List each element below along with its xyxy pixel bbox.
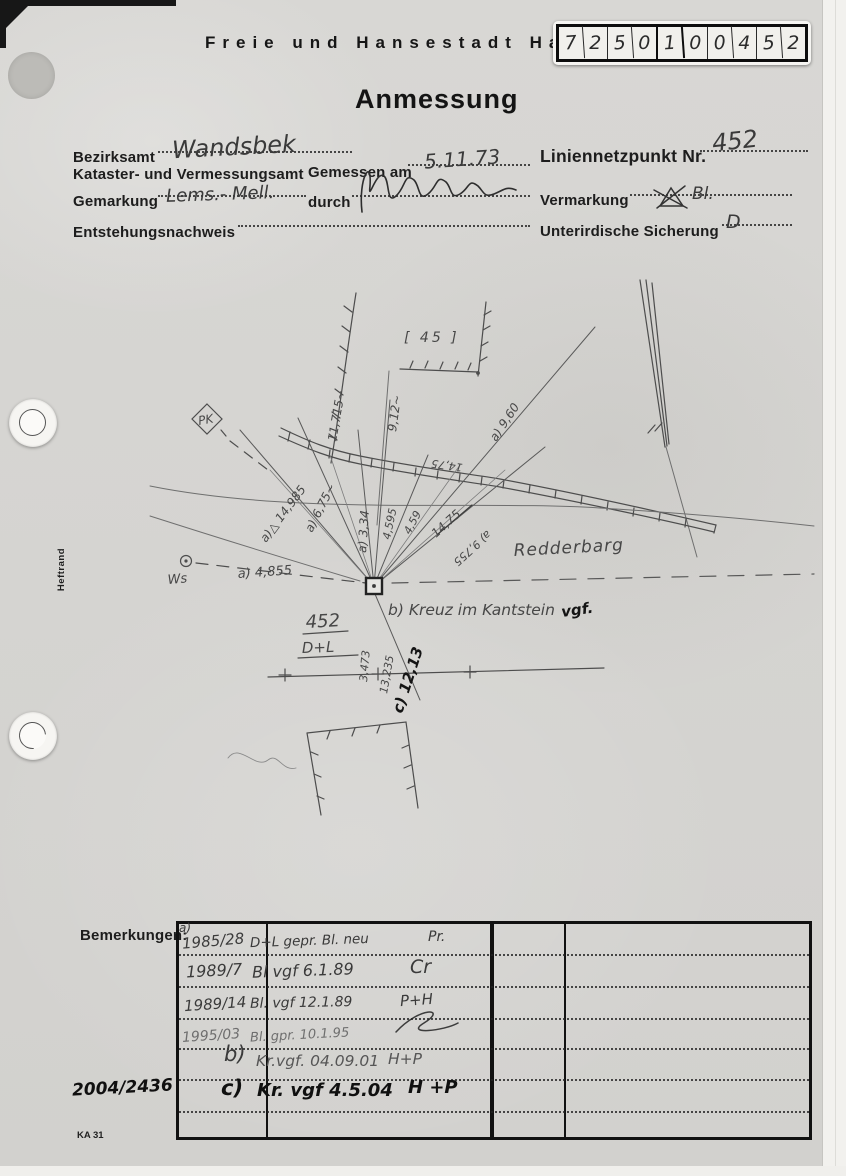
- measure-14985: a)△ 14,985: [257, 483, 309, 545]
- remark-ref: 1989/7: [186, 960, 243, 982]
- measure-4595: 4,595: [380, 507, 399, 541]
- measure-9755: a) 9,755: [451, 528, 494, 568]
- measure-c-1213: c) 12,13: [389, 645, 427, 716]
- pk-label: PK: [197, 411, 215, 428]
- measure-334: a) 3,34: [355, 510, 372, 553]
- point-number: 452: [305, 610, 340, 633]
- measure-960: a) 9,60: [487, 400, 523, 443]
- scanned-survey-sheet: Freie und Hansestadt Ha 7 2 5 0 1 0 0 4 …: [0, 0, 846, 1176]
- remark-note: Kr. vgf 4.5.04: [257, 1080, 393, 1101]
- remark-ref: b): [224, 1042, 246, 1066]
- sketch-labels: [ 45 ] PK 11,715~ 9,12~ a) 9,60 14,75 a)…: [167, 330, 624, 715]
- point-marking: D+L: [302, 638, 335, 657]
- measure-912: 9,12~: [385, 394, 404, 432]
- measure-3473: 3,473: [357, 650, 373, 683]
- street-name: Redderbarg: [513, 535, 624, 561]
- form-code: KA 31: [77, 1130, 104, 1141]
- remark-note: Bl. vgf 12.1.89: [250, 994, 353, 1012]
- measure-1475-band: 14,75: [430, 457, 463, 474]
- parcel-number-label: [ 45 ]: [404, 330, 460, 346]
- ws-label: Ws: [167, 571, 188, 588]
- measure-1475-crossed: 14,75: [429, 507, 464, 540]
- point-note-suffix: vgf.: [560, 599, 594, 621]
- measure-13235: 13,235: [377, 654, 396, 694]
- crossed-triangle-icon: [654, 186, 687, 208]
- remark-sign: Cr: [410, 956, 431, 978]
- remark-note: Kr.vgf. 04.09.01: [256, 1052, 379, 1070]
- remark-sign: H+P: [388, 1050, 422, 1068]
- remark-sign: Pr.: [428, 929, 445, 945]
- point-note: b) Kreuz im Kantstein: [388, 601, 555, 619]
- measure-4855: a) 4,855: [237, 563, 292, 582]
- remark-sign: H +P: [408, 1077, 458, 1098]
- remark-note: Bl vgf 6.1.89: [252, 959, 354, 982]
- remark-sign: P+H: [399, 990, 433, 1010]
- remark-ref: c): [221, 1076, 243, 1100]
- surveyor-signature: [361, 172, 516, 212]
- measure-11715: 11,715~: [325, 389, 348, 443]
- remark-row-tag: a): [179, 921, 191, 935]
- remarks-label: Bemerkungen:: [80, 927, 187, 944]
